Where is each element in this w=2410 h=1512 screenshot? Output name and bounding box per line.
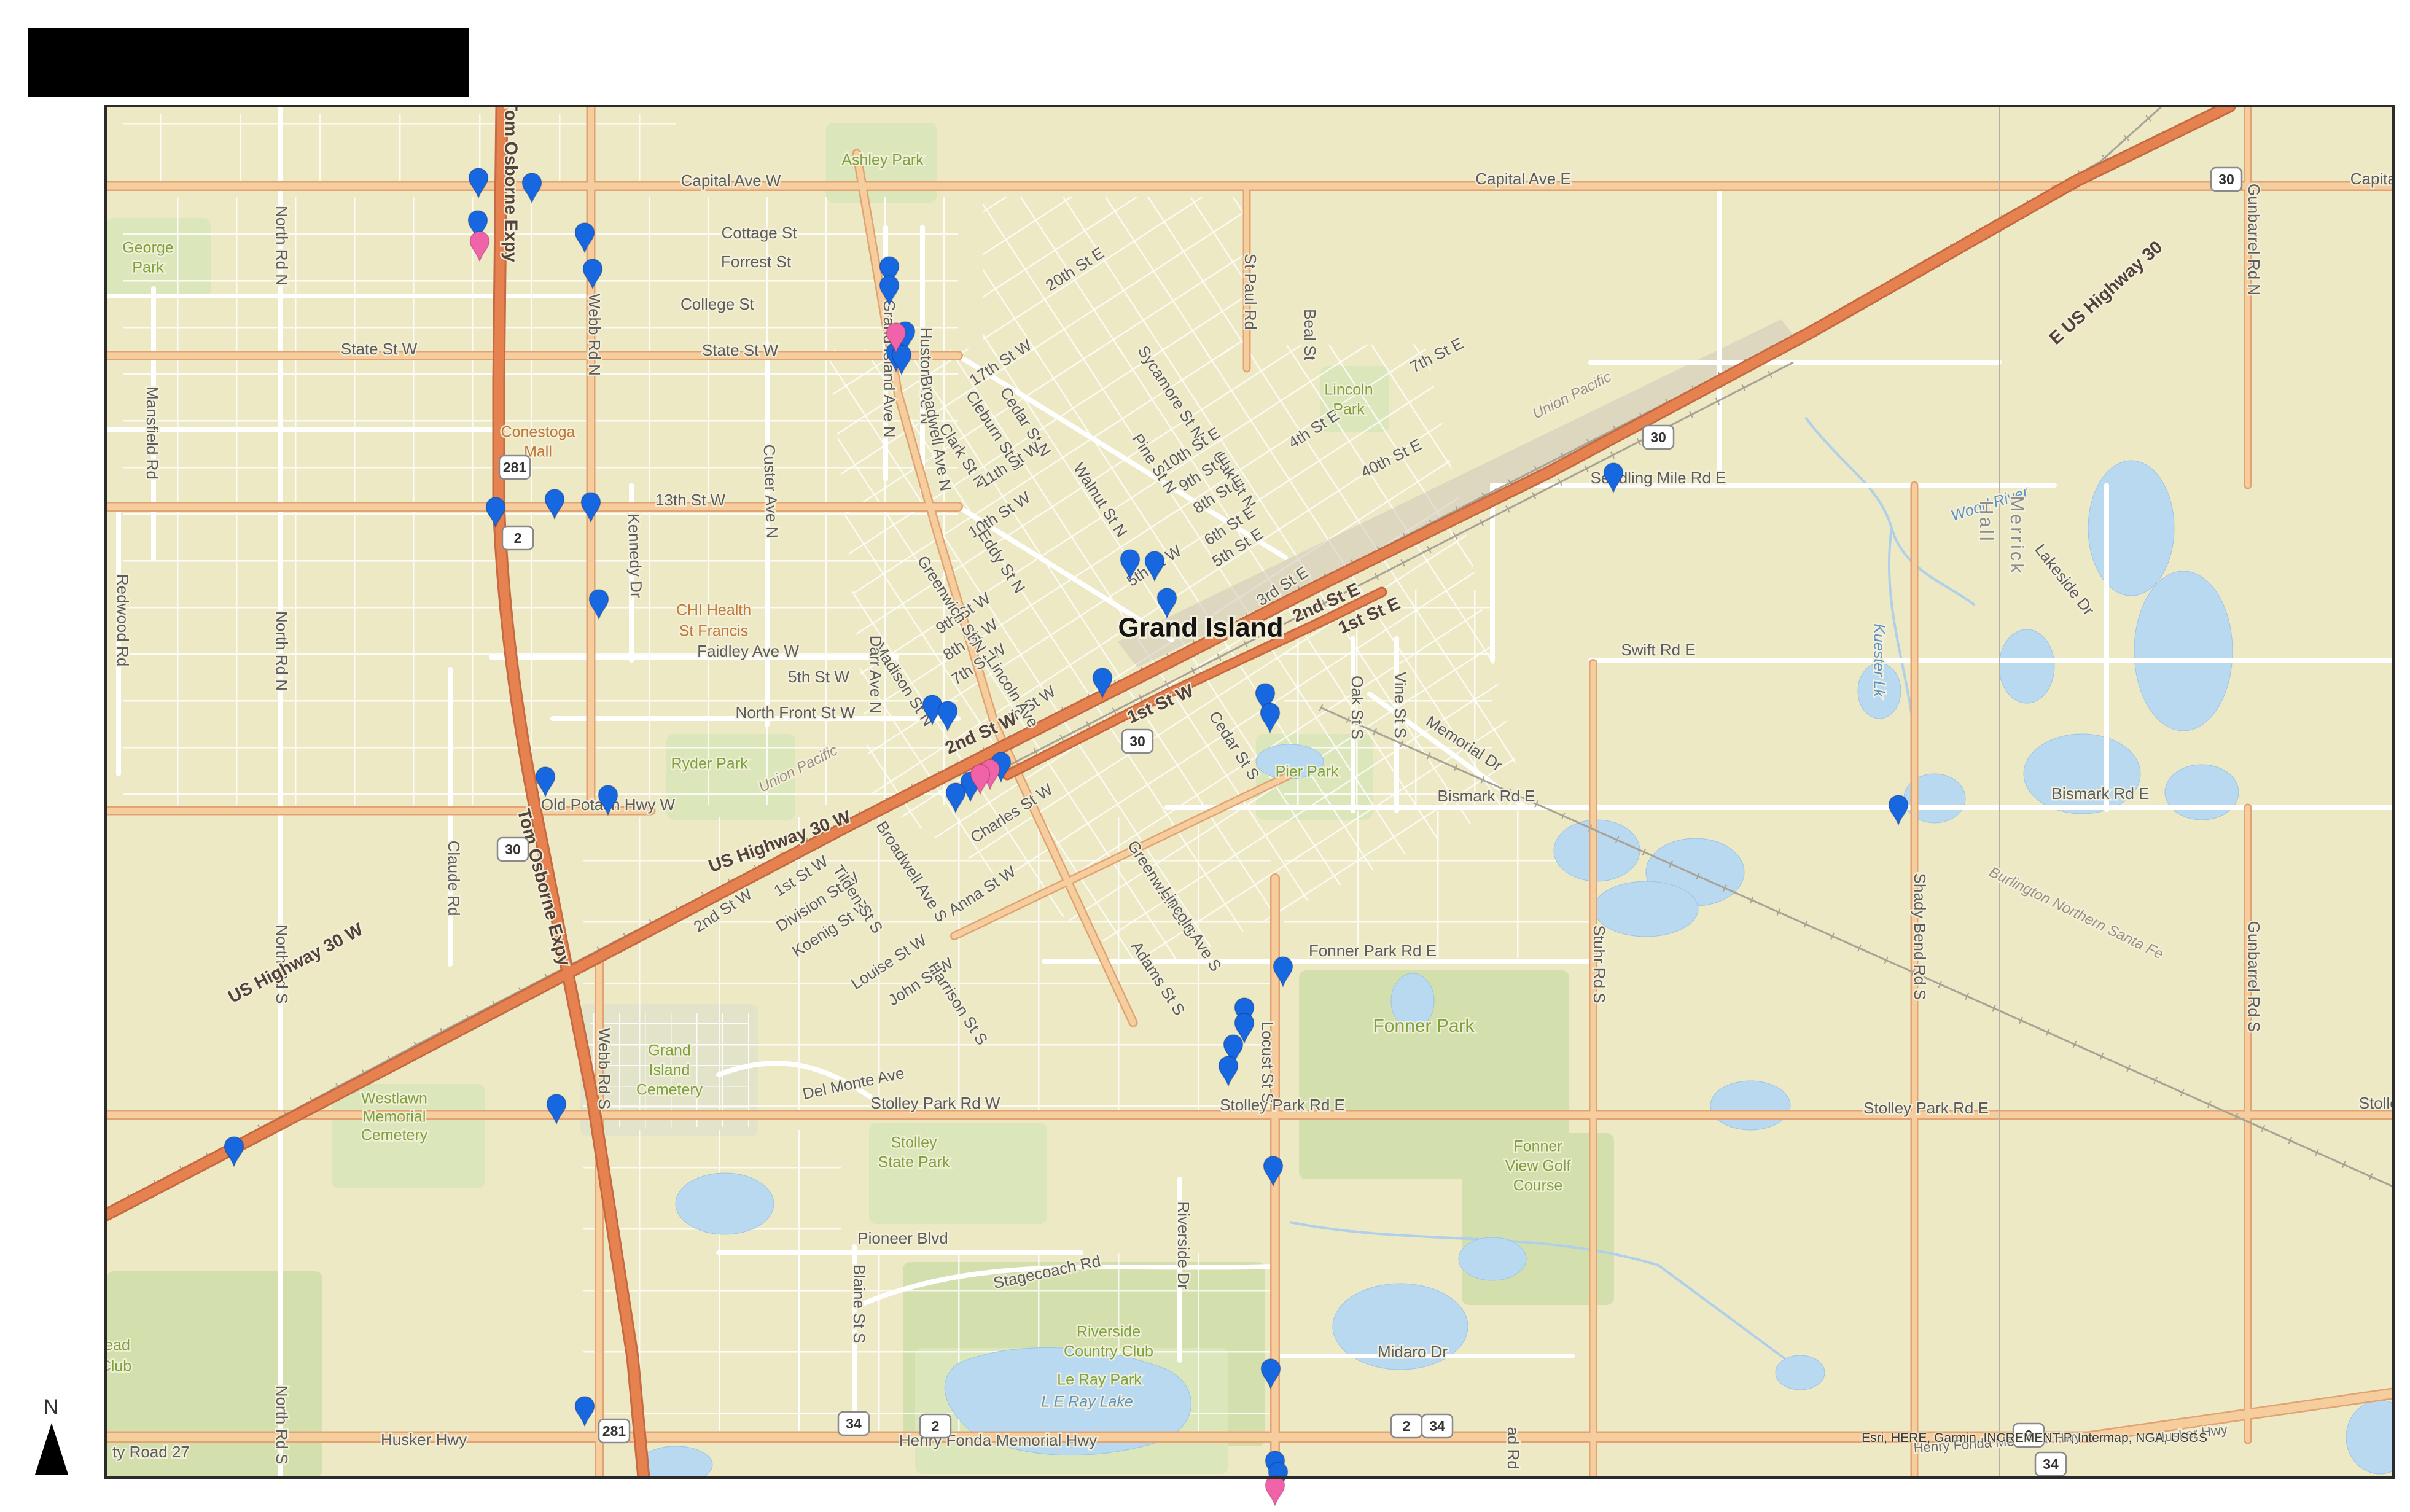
lake	[676, 1173, 774, 1234]
map-label: St Francis	[679, 623, 749, 640]
map-label: Gunbarrel Rd N	[2245, 184, 2263, 295]
map-label: Capital Av	[2350, 170, 2410, 188]
map-label: College St	[680, 295, 755, 313]
map-label: Gunbarrel Rd S	[2245, 921, 2263, 1032]
map-label: Stolley	[891, 1134, 937, 1152]
svg-text:2: 2	[932, 1418, 940, 1434]
route-shield-2: 2	[1391, 1414, 1422, 1438]
map-label: Beal St	[1301, 309, 1319, 361]
map-attribution: Esri, HERE, Garmin, INCREMENT P, Interma…	[1862, 1431, 2207, 1446]
route-shield-2: 2	[502, 526, 533, 550]
map-label: Fonner	[1513, 1138, 1562, 1155]
map-label: Island	[649, 1062, 690, 1079]
map-label: North Front St W	[735, 703, 855, 722]
map-label: Riverside Dr	[1174, 1201, 1193, 1289]
map-label: Forrest St	[721, 252, 792, 271]
map-label: Kuester Lk	[1870, 623, 1887, 698]
map-label: George	[122, 240, 173, 257]
lake	[1776, 1355, 1825, 1390]
svg-text:34: 34	[1429, 1418, 1445, 1434]
map-label: State St W	[702, 341, 779, 359]
map-label: Stolley Park Rd E	[1863, 1099, 1989, 1117]
svg-text:2: 2	[514, 530, 522, 546]
route-shield-34: 34	[2035, 1452, 2066, 1476]
map-label: Shady Bend Rd S	[1911, 873, 1929, 1000]
map-label: Stolley Park Rd E	[1220, 1096, 1345, 1114]
map-label: Le Ray Park	[1057, 1371, 1142, 1389]
map-label: Capital Ave E	[1475, 170, 1571, 188]
svg-text:30: 30	[1129, 733, 1145, 749]
route-shield-30: 30	[1643, 426, 1674, 449]
map-label: Redwood Rd	[114, 574, 132, 666]
map-label: Hall	[1976, 501, 1997, 543]
map-label: Darr Ave N	[867, 636, 885, 714]
north-indicator: N	[32, 1395, 71, 1475]
map-label: Stolley Park Rd W	[871, 1094, 1000, 1112]
map-label: Swift Rd E	[1621, 641, 1695, 659]
map-label: ty Road 27	[112, 1443, 190, 1461]
map-label: Tom Osborne Expy	[501, 100, 520, 262]
route-shield-30: 30	[497, 838, 528, 861]
map-label: Cottage St	[722, 224, 798, 242]
svg-text:281: 281	[602, 1423, 626, 1439]
map-label: Lincoln	[1324, 381, 1373, 399]
lake	[2165, 765, 2239, 820]
north-arrow-icon	[35, 1423, 68, 1475]
map-label: Custer Ave N	[760, 444, 781, 539]
lake	[2134, 571, 2233, 731]
map-label: Stolley P	[2359, 1094, 2410, 1112]
svg-text:34: 34	[2043, 1456, 2059, 1472]
map-label: Grand Island	[1118, 613, 1284, 643]
north-label: N	[32, 1395, 71, 1419]
map-label: Fonner Park Rd E	[1309, 941, 1437, 960]
lake	[1710, 1081, 1790, 1130]
map-label: State Park	[878, 1154, 950, 1171]
map-label: Mansfield Rd	[143, 386, 162, 480]
map-label: North Rd S	[273, 1385, 291, 1465]
map-export-page: Capital Ave WCapital Ave ECapital AvCott…	[0, 0, 2410, 1512]
svg-text:2: 2	[1403, 1418, 1411, 1434]
map-label: Kennedy Dr	[625, 513, 646, 599]
map-label: Oak St S	[1348, 676, 1367, 739]
map-label: Blaine St S	[850, 1265, 868, 1344]
map-label: Bismark Rd E	[1438, 787, 1535, 805]
map-label: St Paul Rd	[1241, 254, 1260, 330]
map-label: Webb Rd S	[595, 1028, 614, 1109]
map-label: Ryder Park	[671, 755, 748, 773]
street-grid	[1284, 811, 1591, 958]
street-grid	[983, 197, 1247, 356]
map-label: Westlawn	[361, 1090, 427, 1107]
svg-text:30: 30	[2218, 171, 2234, 187]
map-label: Faidley Ave W	[697, 642, 799, 660]
map-label: Stuhr Rd S	[1590, 925, 1609, 1003]
map-label: Memorial	[363, 1109, 426, 1126]
map-label: Bismark Rd E	[2052, 784, 2150, 803]
map-label: State St W	[341, 340, 418, 358]
lake	[1999, 629, 2054, 703]
map-label: Indianhead	[54, 1337, 130, 1354]
map-label: Vine St S	[1391, 672, 1410, 738]
route-shield-34: 34	[1422, 1414, 1453, 1438]
map-label: Fonner Park	[1373, 1016, 1475, 1036]
map-label: CHI Health	[676, 602, 751, 619]
route-shield-30: 30	[2211, 168, 2242, 191]
map-label: ad Rd	[1504, 1427, 1523, 1469]
map-label: Grand	[648, 1042, 690, 1059]
map-label: Riverside	[1077, 1323, 1141, 1341]
route-shield-281: 281	[599, 1419, 630, 1443]
map-label: Midaro Dr	[1378, 1342, 1448, 1361]
map-pin-pink-5[interactable]	[1266, 1476, 1285, 1505]
map-label: View Golf	[1505, 1158, 1571, 1175]
map-layers: Capital Ave WCapital Ave ECapital AvCott…	[54, 100, 2410, 1483]
map-label: Golf Club	[68, 1358, 131, 1375]
map-label: Pier Park	[1276, 763, 1339, 781]
map-label: Country Club	[1064, 1343, 1153, 1360]
map-label: Ashley Park	[841, 152, 924, 169]
route-shield-2: 2	[920, 1414, 951, 1438]
svg-text:34: 34	[846, 1416, 862, 1432]
lake	[2346, 1400, 2410, 1474]
map-canvas[interactable]: Capital Ave WCapital Ave ECapital AvCott…	[0, 0, 2410, 1512]
map-label: Capital Ave W	[681, 171, 781, 190]
map-label: North Rd N	[273, 206, 291, 286]
map-label: 5th St W	[788, 668, 849, 686]
map-label: Cemetery	[361, 1127, 428, 1144]
map-label: 13th St W	[655, 491, 726, 509]
lake	[1594, 881, 1698, 937]
svg-text:30: 30	[505, 841, 521, 857]
lake	[1459, 1237, 1526, 1280]
map-label: Merrick	[2006, 496, 2028, 575]
map-label: Conestoga	[501, 424, 575, 441]
map-label: Cemetery	[636, 1081, 703, 1099]
route-shield-30: 30	[1122, 730, 1153, 753]
map-label: L E Ray Lake	[1041, 1393, 1133, 1411]
map-label: Pioneer Blvd	[857, 1229, 948, 1247]
route-shield-34: 34	[838, 1412, 869, 1435]
svg-text:30: 30	[1650, 429, 1666, 445]
lake	[2088, 461, 2174, 596]
map-label: Park	[132, 259, 164, 276]
svg-text:281: 281	[503, 459, 527, 475]
map-label: Husker Hwy	[381, 1430, 467, 1449]
map-label: North Rd N	[273, 611, 291, 691]
map-label: Course	[1513, 1177, 1563, 1194]
map-label: Locust St S	[1258, 1022, 1277, 1104]
route-shield-281: 281	[499, 456, 530, 479]
map-label: Webb Rd N	[585, 294, 604, 376]
map-label: Claude Rd	[445, 841, 463, 916]
